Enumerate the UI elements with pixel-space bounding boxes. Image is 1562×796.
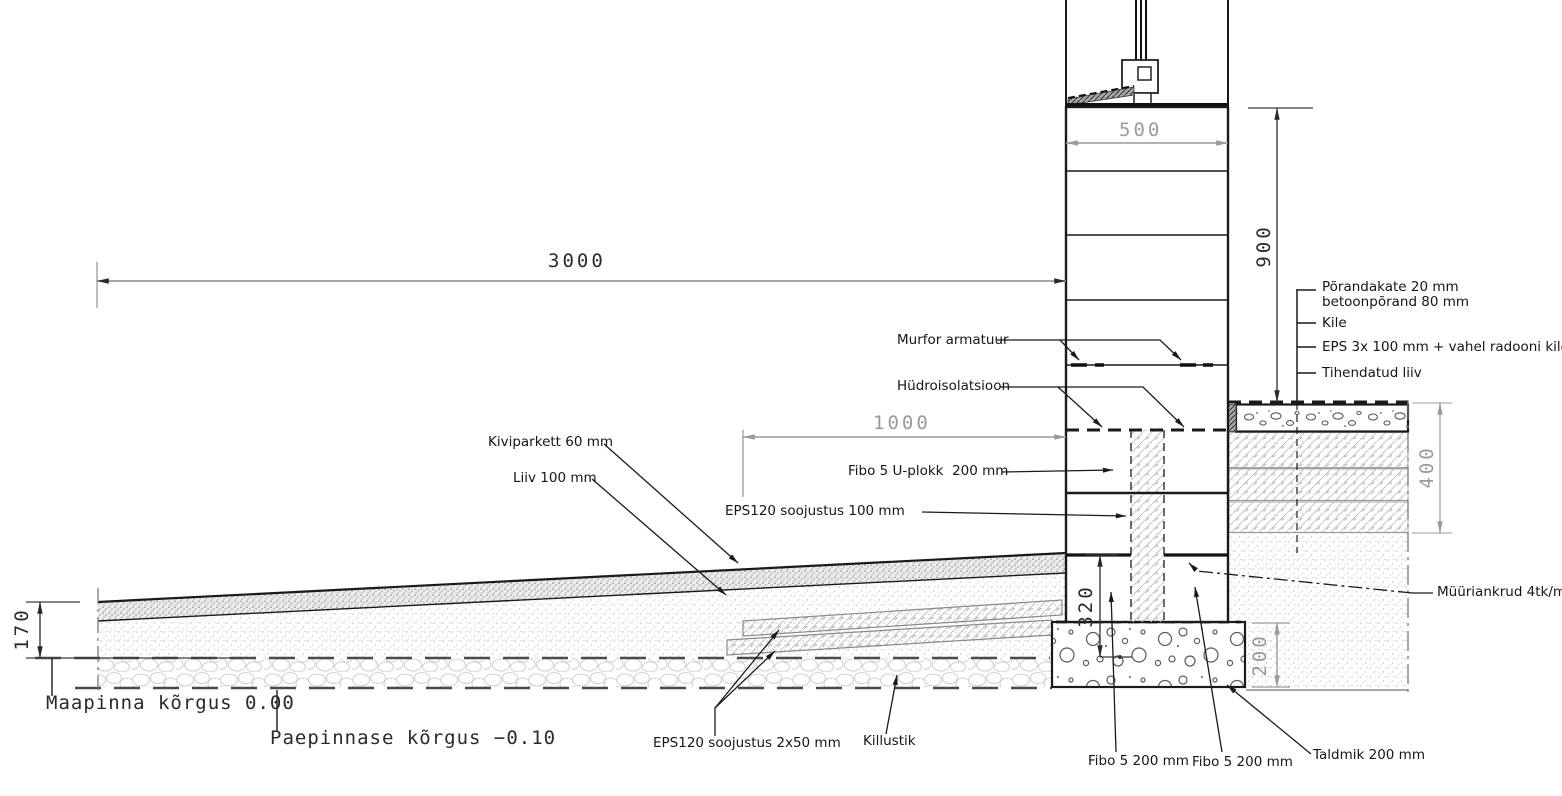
label-fibo-right: Fibo 5 200 mm	[1192, 755, 1293, 770]
crushed-stone-layer	[98, 658, 1052, 687]
label-kiviparkett: Kiviparkett 60 mm	[488, 435, 613, 450]
label-hydroisolation: Hüdroisolatsioon	[897, 379, 1010, 394]
dim-200-text: 200	[1249, 633, 1271, 676]
section-geometry	[0, 0, 1562, 796]
label-fibo-u-plokk: Fibo 5 U-plokk 200 mm	[848, 464, 1008, 479]
dim-320-text: 320	[1075, 584, 1097, 627]
floor-eps-layer-1	[1229, 433, 1408, 468]
floor-eps-layer-3	[1229, 502, 1408, 533]
glazing-lines	[1136, 0, 1146, 62]
label-taldmik: Taldmik 200 mm	[1313, 748, 1425, 763]
concrete-floor-slab	[1236, 405, 1408, 432]
label-killustik: Killustik	[863, 734, 916, 749]
floor-layer-item-2: Kile	[1322, 316, 1347, 331]
label-muuriankrud: Müüriankrud 4tk/m²	[1437, 585, 1562, 600]
dim-500-text: 500	[1119, 119, 1162, 141]
label-limestone-level: Paepinnase kõrgus −0.10	[270, 731, 556, 746]
floor-eps-layer-2	[1229, 469, 1408, 501]
dim-1000-text: 1000	[873, 412, 931, 434]
sill-insulation-wedge	[1068, 87, 1134, 105]
dim-400-text: 400	[1416, 445, 1438, 488]
label-eps120-100: EPS120 soojustus 100 mm	[725, 504, 905, 519]
label-murfor-armatuur: Murfor armatuur	[897, 333, 1009, 348]
floor-layer-item-4: Tihendatud liiv	[1322, 366, 1422, 381]
floor-layer-item-1: Põrandakate 20 mm betoonpõrand 80 mm	[1322, 280, 1469, 310]
label-fibo-left: Fibo 5 200 mm	[1088, 754, 1189, 769]
frame-support-block	[1134, 93, 1151, 104]
label-eps120-2x50: EPS120 soojustus 2x50 mm	[653, 736, 841, 751]
dim-170-text: 170	[11, 607, 33, 650]
wall-eps-core	[1131, 430, 1164, 622]
foundation-section-drawing: Murfor armatuur Hüdroisolatsioon Kivipar…	[0, 0, 1562, 796]
dim-3000-text: 3000	[548, 250, 606, 272]
foundation-footing	[1052, 622, 1245, 687]
dim-900-text: 900	[1253, 224, 1275, 267]
slab-edge-insulation-strip	[1229, 405, 1237, 432]
terrain-left	[35, 553, 1066, 690]
label-ground-level: Maapinna kõrgus 0.00	[46, 696, 295, 711]
label-liiv: Liiv 100 mm	[513, 471, 597, 486]
floor-layer-item-3: EPS 3x 100 mm + vahel radooni kile	[1322, 340, 1562, 355]
window-sill-detail	[1066, 0, 1228, 105]
